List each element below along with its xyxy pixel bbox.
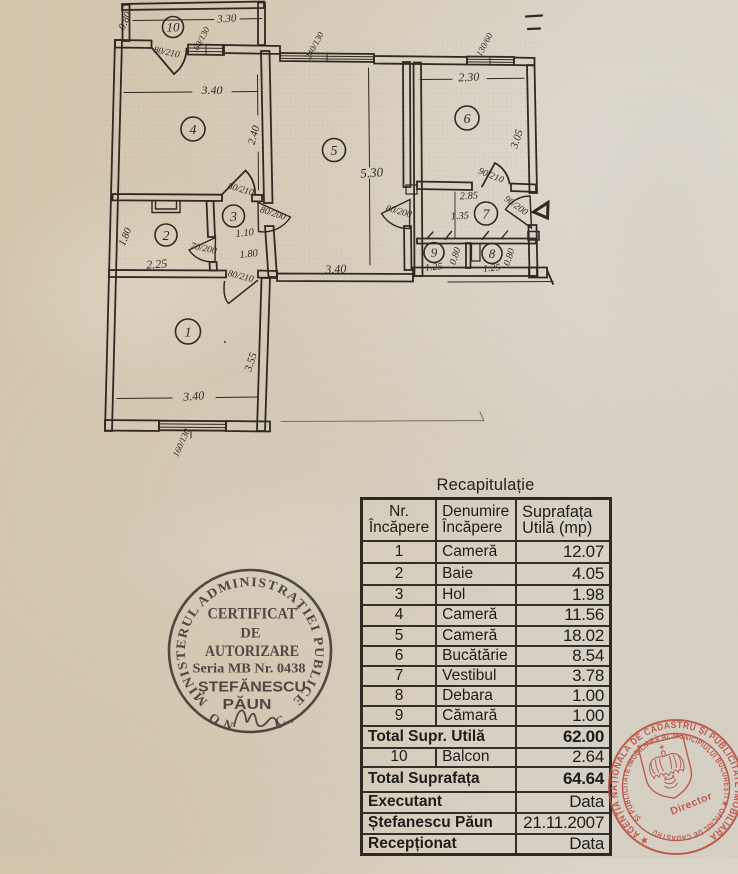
svg-text:ȘI PUBLICITATE IMOBILIARĂ AL M: ȘI PUBLICITATE IMOBILIARĂ AL MUNICIPIULU… [620, 731, 731, 842]
svg-text:2.30: 2.30 [458, 69, 480, 84]
svg-text:0.80: 0.80 [117, 10, 134, 32]
svg-text:3.55: 3.55 [242, 351, 260, 374]
svg-text:1.10: 1.10 [235, 227, 255, 240]
svg-text:Director: Director [669, 790, 715, 818]
svg-text:4: 4 [190, 123, 197, 138]
svg-text:10: 10 [167, 20, 181, 35]
svg-text:1.25: 1.25 [483, 262, 501, 274]
svg-text:3.40: 3.40 [201, 83, 223, 97]
svg-text:6: 6 [464, 112, 471, 127]
svg-text:DE: DE [240, 626, 260, 642]
svg-text:1.80: 1.80 [239, 248, 259, 261]
svg-text:3.40: 3.40 [324, 261, 347, 276]
svg-text:CERTIFICAT: CERTIFICAT [208, 606, 298, 623]
svg-text:3.30: 3.30 [216, 12, 237, 25]
svg-text:3: 3 [229, 210, 237, 225]
svg-text:5: 5 [331, 144, 338, 159]
svg-text:AUTORIZARE: AUTORIZARE [205, 643, 299, 660]
svg-text:PĂUN: PĂUN [223, 696, 272, 713]
svg-text:5.30: 5.30 [360, 164, 384, 181]
svg-text:ȘTEFĂNESCU: ȘTEFĂNESCU [198, 679, 306, 696]
svg-text:7: 7 [483, 208, 491, 223]
svg-text:9: 9 [431, 245, 438, 260]
svg-text:3.40: 3.40 [182, 388, 205, 404]
svg-text:1.35: 1.35 [450, 211, 469, 223]
svg-text:1: 1 [185, 326, 192, 341]
svg-text:8: 8 [489, 246, 496, 261]
svg-text:2.85: 2.85 [459, 191, 478, 203]
svg-text:160/130: 160/130 [171, 427, 192, 458]
svg-text:Seria MB Nr. 0438: Seria MB Nr. 0438 [193, 661, 306, 676]
svg-text:2: 2 [163, 229, 170, 244]
svg-text:O: O [206, 710, 223, 728]
